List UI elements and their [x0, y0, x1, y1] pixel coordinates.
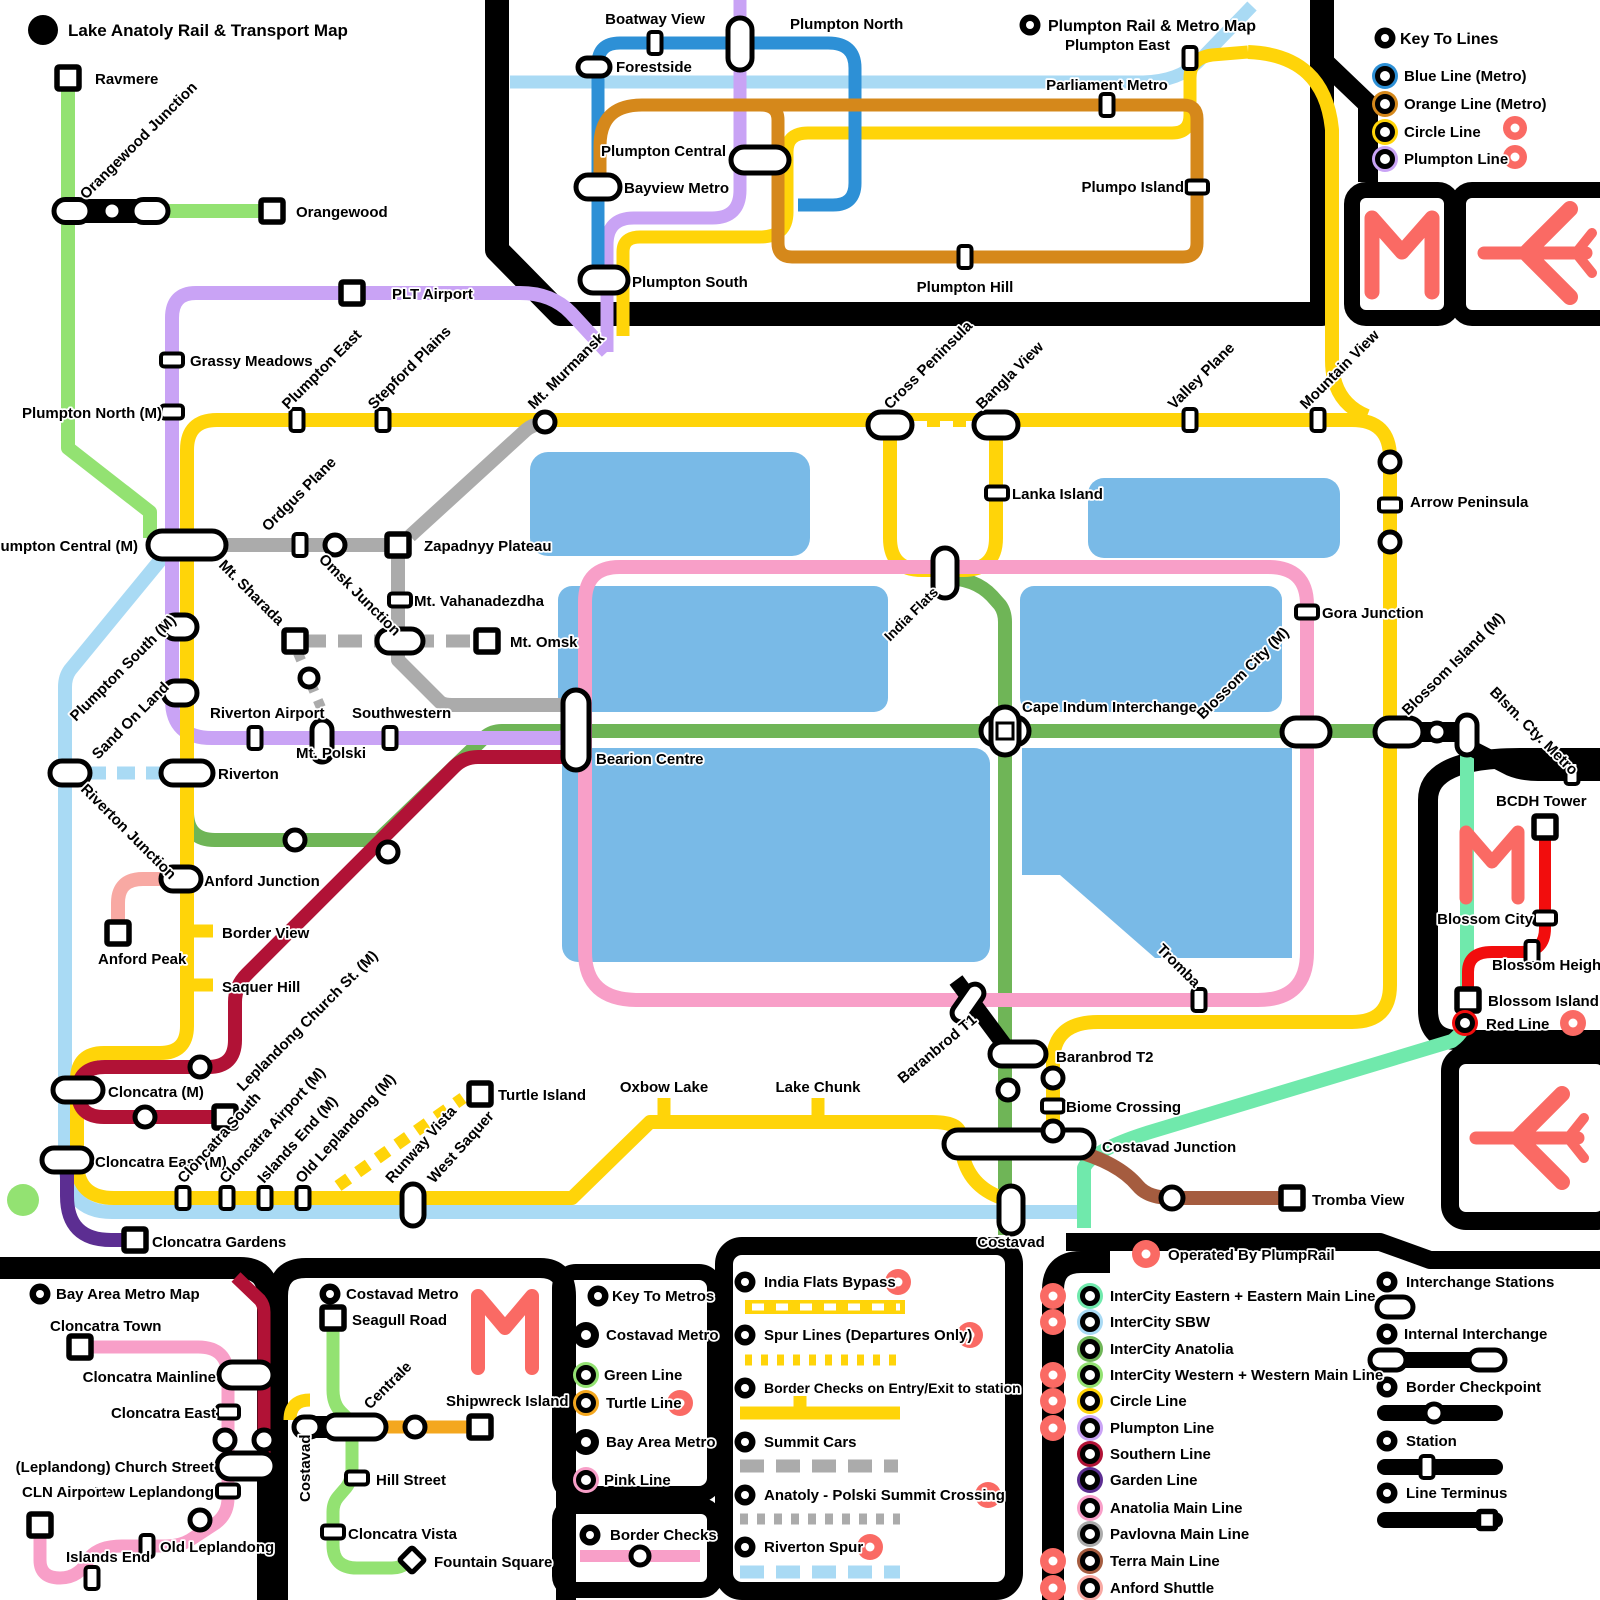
map-label: Plumpton South [632, 274, 748, 291]
map-label: Mt. Omsk [510, 634, 578, 651]
terminus-square [1457, 989, 1479, 1011]
map-label: Cross Peninsula [881, 317, 977, 413]
airport-logo-icon [1484, 209, 1592, 297]
station-pill [1469, 1350, 1505, 1370]
map-label: Anford Shuttle [1110, 1580, 1214, 1597]
map-label: Bay Area Metro Map [56, 1286, 200, 1303]
map-label: Lanka Island [1012, 486, 1103, 503]
pavlovna-south-branch [398, 545, 566, 705]
legend-line-ring-center [1083, 1315, 1098, 1330]
map-label: InterCity Eastern + Eastern Main Line [1110, 1288, 1376, 1305]
map-label: Key To Metros [612, 1288, 714, 1305]
legend-line-ring-center [1083, 1289, 1098, 1304]
station-pill [148, 531, 226, 559]
terminus-square [57, 67, 79, 89]
map-label: Boatway View [605, 11, 705, 28]
legend-black-ring-center [741, 1543, 749, 1551]
terminus-square [1534, 816, 1556, 838]
map-label: Blossom Island (M) [1399, 610, 1508, 719]
map-label: Ravmere [95, 71, 158, 88]
plumprail-dot-center [1142, 1250, 1151, 1259]
map-label: Anatolia Main Line [1110, 1500, 1243, 1517]
map-label: Internal Interchange [1404, 1326, 1547, 1343]
legend-line-ring-center [579, 1368, 594, 1383]
map-label: Blue Line (Metro) [1404, 68, 1527, 85]
map-label: Lake Anatoly Rail & Transport Map [68, 21, 348, 40]
legend-line-ring-center [1083, 1501, 1098, 1516]
station-tick [294, 534, 307, 556]
map-label: Border View [222, 925, 310, 942]
station-pill [53, 1078, 103, 1102]
station-pill [974, 412, 1018, 438]
station-pill [576, 175, 620, 199]
map-label: Bangla View [973, 338, 1048, 413]
station-tick [1296, 606, 1318, 619]
station-pill [217, 1453, 275, 1479]
map-label: PLT Airport [392, 286, 473, 303]
interchange-circle [535, 412, 555, 432]
station-pill [1282, 718, 1330, 746]
map-label: Interchange Stations [1406, 1274, 1554, 1291]
terminus-square [469, 1083, 491, 1105]
western-main-line [68, 88, 150, 538]
station-tick [217, 1485, 239, 1498]
map-label: Saquer Hill [222, 979, 300, 996]
terminus-dot [28, 15, 58, 45]
plumprail-dot-center [1569, 1019, 1578, 1028]
station-tick [1184, 409, 1197, 431]
station-tick [377, 409, 390, 431]
station-pill [1457, 715, 1477, 755]
map-label: Anatoly - Polski Summit Crossing [764, 1487, 1005, 1504]
map-label: Plumpton Line [1404, 151, 1508, 168]
interchange-circle [190, 1057, 210, 1077]
anford-shuttle [118, 879, 165, 926]
interchange-circle [135, 1107, 155, 1127]
station-tick [259, 1187, 272, 1209]
station-tick [346, 1472, 368, 1485]
map-label: Baranbrod T2 [1056, 1049, 1154, 1066]
map-label: Costavad Metro [346, 1286, 459, 1303]
interchange-circle [215, 1430, 235, 1450]
metro-logo-icon [1372, 218, 1432, 292]
map-label: Plumpton South (M) [67, 612, 180, 725]
terminus-square [284, 630, 306, 652]
plumprail-dot-center [1049, 1557, 1058, 1566]
map-label: Grassy Meadows [190, 353, 313, 370]
terminus-square [1281, 1187, 1303, 1209]
plumprail-dot-center [1049, 1292, 1058, 1301]
map-label: InterCity SBW [1110, 1314, 1211, 1331]
legend-black-ring-center [741, 1331, 749, 1339]
map-label: Bearion Centre [596, 751, 704, 768]
terminus-square [261, 200, 283, 222]
terminus-square [107, 922, 129, 944]
plumprail-dot-center [1049, 1318, 1058, 1327]
map-label: Mt. Sharada [215, 557, 288, 630]
legend-black-ring-center [36, 1290, 44, 1298]
map-label: Circle Line [1404, 124, 1481, 141]
station-tick [389, 594, 411, 607]
map-label: Orangewood Junction [77, 79, 201, 203]
plumprail-dot-center [1049, 1584, 1058, 1593]
map-label: Plumpton North (M) [22, 405, 162, 422]
map-label: InterCity Western + Western Main Line [1110, 1367, 1383, 1384]
terminus-square [341, 282, 363, 304]
plumprail-dot-center [1511, 153, 1520, 162]
map-label: Blossom Island [1488, 993, 1599, 1010]
map-label: Spur Lines (Departures Only) [764, 1327, 972, 1344]
interchange-circle [378, 842, 398, 862]
map-label: Plumpton Rail & Metro Map [1048, 18, 1256, 35]
station-pill [1377, 1297, 1413, 1317]
legend-black-ring-center [1383, 1278, 1391, 1286]
legend-line-ring-center [1083, 1554, 1098, 1569]
interchange-circle [1161, 1187, 1183, 1209]
map-label: Border Checks [610, 1527, 717, 1544]
terminus-dot [7, 1184, 39, 1216]
map-label: India Flats Bypass [764, 1274, 896, 1291]
map-label: India Flats [881, 584, 941, 644]
map-label: Stepford Plains [365, 323, 455, 413]
map-label: Pavlovna Main Line [1110, 1526, 1249, 1543]
legend-line-ring-center [1083, 1342, 1098, 1357]
map-label: Mt. Murmansk [525, 329, 609, 413]
map-label: Key To Lines [1400, 31, 1498, 48]
map-label: Turtle Island [498, 1087, 586, 1104]
map-label: Plumpton Central (M) [0, 538, 138, 555]
station-tick [959, 246, 972, 268]
map-label: Parliament Metro [1046, 77, 1168, 94]
station-pill [944, 1130, 1094, 1158]
map-label: Cloncatra Vista [348, 1526, 458, 1543]
station-tick [291, 409, 304, 431]
map-label: Costavad Metro [606, 1327, 719, 1344]
map-label: Runway Vista [382, 1103, 460, 1187]
legend-line-ring-center [1378, 125, 1393, 140]
map-label: Riverton Junction [77, 781, 179, 883]
legend-black-ring-center [586, 1531, 594, 1539]
station-pill [50, 761, 90, 785]
map-label: Fountain Square [434, 1554, 552, 1571]
terminus-square [69, 1336, 91, 1358]
map-label: Orange Line (Metro) [1404, 96, 1547, 113]
map-label: Costavad [977, 1234, 1045, 1251]
map-label: Cloncatra (M) [108, 1084, 204, 1101]
station-tick [1101, 94, 1114, 116]
map-label: New Leplandong [94, 1484, 214, 1501]
map-label: Costavad Junction [1102, 1139, 1236, 1156]
map-label: Gora Junction [1322, 605, 1424, 622]
map-label: Plumpton Hill [917, 279, 1014, 296]
plumprail-dot-center [1049, 1371, 1058, 1380]
map-label: Southwestern [352, 705, 451, 722]
station-pill [219, 1362, 273, 1388]
legend-line-ring-center [1083, 1473, 1098, 1488]
map-label: Plumpton North [790, 16, 903, 33]
station-pill [933, 548, 957, 598]
legend-black-ring-center [741, 1278, 749, 1286]
legend-line-ring-center [1458, 1016, 1473, 1031]
map-label: InterCity Anatolia [1110, 1341, 1234, 1358]
station-tick [322, 1526, 344, 1539]
station-pill [563, 690, 589, 770]
legend-line-ring-center [1083, 1447, 1098, 1462]
legend-line-ring-center [1378, 152, 1393, 167]
station-tick [161, 354, 183, 367]
map-label: Green Line [604, 1367, 682, 1384]
map-label: Baranbrod T1 [895, 1011, 981, 1087]
sample-border-checks [740, 1396, 900, 1413]
station-tick [1042, 1100, 1064, 1113]
map-label: Oxbow Lake [620, 1079, 708, 1096]
map-label: Cloncatra Town [50, 1318, 161, 1335]
interchange-circle [1043, 1068, 1063, 1088]
map-label: Plumpton Line [1110, 1420, 1214, 1437]
legend-black-ring-center [741, 1384, 749, 1392]
station-tick [384, 727, 397, 749]
legend-black-ring-center [1383, 1437, 1391, 1445]
legend-black-ring-center [741, 1438, 749, 1446]
map-label: Cloncatra Mainline [83, 1369, 216, 1386]
map-label: Biome Crossing [1066, 1099, 1181, 1116]
map-label: Circle Line [1110, 1393, 1187, 1410]
station-pill [161, 761, 213, 785]
plumprail-dot-center [1511, 124, 1520, 133]
station-tick [161, 406, 183, 419]
cross-interchange [991, 707, 1019, 755]
station-tick [1421, 1456, 1434, 1478]
map-label: BCDH Tower [1496, 793, 1587, 810]
legend-black-ring-center [326, 1290, 334, 1298]
map-label: Riverton [218, 766, 279, 783]
legend-line-ring-center [579, 1435, 594, 1450]
station-tick [1186, 181, 1208, 194]
transit-map: Lake Anatoly Rail & Transport MapRavmere… [0, 0, 1600, 1600]
map-label: Lake Chunk [775, 1079, 861, 1096]
map-label: Blossom City [1437, 911, 1534, 928]
map-label: Garden Line [1110, 1472, 1198, 1489]
station-pill [731, 147, 789, 173]
legend-black-ring-center [1381, 34, 1389, 42]
map-label: Line Terminus [1406, 1485, 1507, 1502]
map-label: Zapadnyy Plateau [424, 538, 552, 555]
station-pill [54, 200, 90, 223]
airport-logo-icon-2 [1476, 1094, 1584, 1182]
station-pill [42, 1148, 92, 1172]
station-tick [986, 487, 1008, 500]
station-pill [294, 1417, 320, 1437]
station-tick [649, 32, 662, 54]
legend-black-ring-center [594, 1292, 602, 1300]
map-label: Anford Peak [98, 951, 187, 968]
map-label: Ordgus Plane [259, 454, 340, 535]
station-pill [868, 412, 912, 438]
station-tick [1312, 409, 1325, 431]
map-label: Operated By PlumpRail [1168, 1247, 1335, 1264]
map-label: Cloncatra East [111, 1405, 216, 1422]
legend-line-ring-center [579, 1328, 594, 1343]
map-label: Summit Cars [764, 1434, 857, 1451]
map-label: Arrow Peninsula [1410, 494, 1529, 511]
station-pill [1375, 718, 1423, 746]
map-label: (Leplandong) Church Street [16, 1459, 214, 1476]
map-label: Shipwreck Island [446, 1393, 569, 1410]
terminus-square [1479, 1512, 1496, 1529]
map-label: Centrale [361, 1358, 415, 1412]
terminus-square [387, 534, 409, 556]
station-tick [297, 1187, 310, 1209]
legend-black-ring-center [1383, 1489, 1391, 1497]
map-label: Mt. Vahanadezdha [414, 593, 545, 610]
legend-line-ring-center [1083, 1394, 1098, 1409]
interchange-circle [254, 1430, 274, 1450]
station-tick [217, 1406, 239, 1419]
station-pill [999, 1186, 1023, 1234]
transit-map-page: Lake Anatoly Rail & Transport Map [0, 0, 1600, 1600]
pavlovna-murmansk-branch [410, 424, 540, 536]
legend-line-ring-center [1378, 97, 1393, 112]
map-label: Border Checks on Entry/Exit to station [764, 1380, 1021, 1396]
map-label: Plumpton East [1065, 37, 1170, 54]
map-label: Old Leplandong [160, 1539, 274, 1556]
map-label: Border Checkpoint [1406, 1379, 1541, 1396]
interchange-circle [1425, 1404, 1443, 1422]
interchange-circle [285, 830, 305, 850]
plumprail-dot-center [1049, 1424, 1058, 1433]
map-label: Bay Area Metro [606, 1434, 715, 1451]
interchange-circle [1043, 1121, 1063, 1141]
station-tick [1193, 989, 1206, 1011]
map-label: Valley Plane [1165, 339, 1238, 412]
terminus-square [29, 1514, 51, 1536]
map-label: CLN Airport [22, 1484, 106, 1501]
interchange-circle [1380, 532, 1400, 552]
map-label: Riverton Airport [210, 705, 324, 722]
station-pill [132, 200, 168, 223]
station-pill [402, 1184, 424, 1226]
map-label: Plumpton Central [601, 143, 726, 160]
southern-line [78, 757, 570, 1117]
interchange-circle [405, 1417, 425, 1437]
station-tick [1534, 912, 1556, 925]
map-label: Islands End [66, 1549, 150, 1566]
map-label: Forestside [616, 59, 692, 76]
legend-line-ring-center [1083, 1527, 1098, 1542]
station-pill [728, 18, 752, 70]
station-tick [1379, 499, 1401, 512]
map-label: Seagull Road [352, 1312, 447, 1329]
terminus-square [124, 1229, 146, 1251]
station-tick [86, 1567, 99, 1589]
station-pill [324, 1415, 386, 1439]
legend-line-ring-center [1083, 1368, 1098, 1383]
terminus-square [476, 630, 498, 652]
interchange-circle [631, 1547, 649, 1565]
interchange-circle [1380, 452, 1400, 472]
station-tick [177, 1187, 190, 1209]
interchange-circle [300, 669, 318, 687]
map-label: Cloncatra Gardens [152, 1234, 286, 1251]
map-label: Station [1406, 1433, 1457, 1450]
station-tick [221, 1187, 234, 1209]
legend-line-ring-center [1083, 1581, 1098, 1596]
metro-logo-icon-costavad [478, 1296, 532, 1368]
station-pill [580, 267, 628, 293]
legend-line-ring-center [579, 1473, 594, 1488]
terminus-square [469, 1416, 491, 1438]
map-label: Cape Indum Interchange [1022, 699, 1197, 716]
plumprail-dot-center [866, 1543, 875, 1552]
map-label: Red Line [1486, 1016, 1549, 1033]
station-pill [578, 58, 610, 76]
map-label: Costavad [297, 1434, 314, 1502]
map-label: Riverton Spur [764, 1539, 863, 1556]
map-label: Anford Junction [204, 873, 320, 890]
station-tick [249, 727, 262, 749]
station-pill [377, 629, 423, 653]
legend-line-ring-center [1083, 1421, 1098, 1436]
map-label: Hill Street [376, 1472, 446, 1489]
map-label: Bayview Metro [624, 180, 729, 197]
interchange-circle [1428, 723, 1446, 741]
map-label: Terra Main Line [1110, 1553, 1220, 1570]
legend-black-ring-center [1383, 1383, 1391, 1391]
map-label: Pink Line [604, 1472, 671, 1489]
map-label: Mt. Polski [296, 745, 366, 762]
map-label: Blossom Heights [1492, 957, 1600, 974]
plumprail-dot-center [1049, 1397, 1058, 1406]
interchange-circle [190, 1510, 210, 1530]
station-pill [990, 1042, 1046, 1066]
legend-black-ring-center [1026, 21, 1034, 29]
legend-black-ring-center [1383, 1330, 1391, 1338]
legend-line-ring-center [579, 1396, 594, 1411]
map-label: Plumpo Island [1081, 179, 1184, 196]
map-label: Tromba View [1312, 1192, 1405, 1209]
map-label: Turtle Line [606, 1395, 682, 1412]
station-tick [1184, 47, 1197, 69]
interchange-circle [998, 1080, 1018, 1100]
terminus-square [322, 1307, 344, 1329]
interchange-circle [103, 202, 121, 220]
legend-black-ring-center [741, 1491, 749, 1499]
map-label: Southern Line [1110, 1446, 1211, 1463]
legend-line-ring-center [1378, 69, 1393, 84]
map-label: Orangewood [296, 204, 388, 221]
